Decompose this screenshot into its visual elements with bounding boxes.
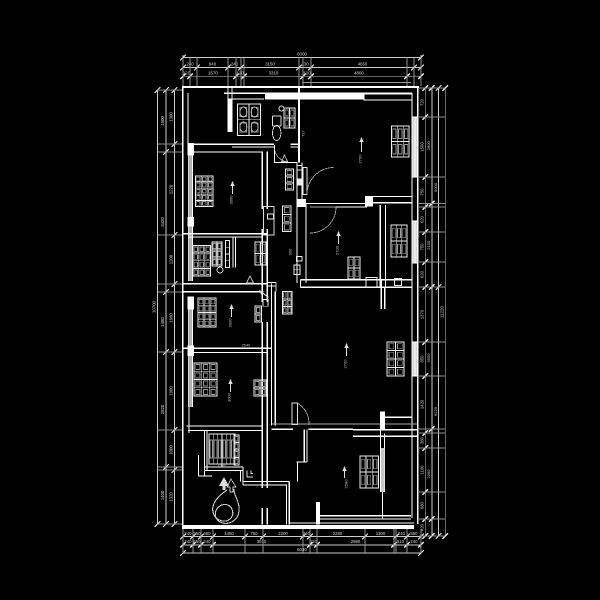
svg-text:620: 620 [419,215,424,223]
svg-text:3150: 3150 [265,62,275,67]
svg-text:3000: 3000 [228,318,233,328]
svg-text:1660: 1660 [169,313,174,323]
svg-text:1450: 1450 [218,463,226,467]
svg-text:4650: 4650 [358,62,368,67]
svg-text:2220: 2220 [169,184,174,194]
svg-text:3310: 3310 [269,70,279,75]
svg-text:900: 900 [288,248,293,255]
svg-text:380: 380 [419,436,424,444]
svg-text:3000: 3000 [229,195,234,205]
svg-text:680: 680 [419,501,424,509]
svg-text:1500: 1500 [160,116,165,126]
svg-text:3420: 3420 [160,217,165,227]
svg-text:1100: 1100 [419,465,424,475]
svg-text:240: 240 [410,539,418,544]
svg-text:620: 620 [419,270,424,278]
svg-text:2250: 2250 [426,469,431,479]
svg-text:480: 480 [203,531,211,536]
svg-text:240: 240 [231,62,239,67]
svg-text:120: 120 [310,539,318,544]
svg-text:1450: 1450 [224,531,234,536]
svg-text:510: 510 [397,539,405,544]
svg-text:550: 550 [193,539,201,544]
svg-text:2700: 2700 [335,245,340,255]
svg-text:1200: 1200 [169,254,174,264]
svg-text:6220: 6220 [433,406,438,416]
svg-text:2700: 2700 [358,154,363,164]
svg-text:850: 850 [419,355,424,363]
svg-text:240: 240 [184,539,192,544]
svg-text:1370: 1370 [419,309,424,319]
svg-text:750: 750 [419,188,424,196]
svg-text:2100: 2100 [426,240,431,250]
svg-text:1570: 1570 [208,70,218,75]
svg-text:2280: 2280 [333,531,343,536]
svg-text:2820: 2820 [160,404,165,414]
svg-text:120: 120 [303,70,311,75]
svg-text:2580: 2580 [344,479,349,489]
svg-text:240: 240 [184,531,192,536]
svg-text:727: 727 [301,129,306,136]
svg-text:6000: 6000 [297,52,307,57]
svg-text:2900: 2900 [426,141,431,151]
svg-text:1900: 1900 [169,386,174,396]
svg-text:10700: 10700 [152,300,157,313]
svg-text:1300: 1300 [169,112,174,122]
svg-text:2700: 2700 [343,359,348,369]
svg-text:4800: 4800 [354,70,364,75]
svg-text:1400: 1400 [160,490,165,500]
svg-text:350: 350 [193,531,201,536]
svg-text:2980: 2980 [351,539,361,544]
svg-text:750: 750 [250,531,258,536]
svg-text:1420: 1420 [419,399,424,409]
svg-text:120: 120 [183,70,191,75]
svg-text:420: 420 [419,523,424,531]
svg-text:240: 240 [203,539,211,544]
svg-text:1000: 1000 [169,445,174,455]
svg-text:6040: 6040 [297,547,307,552]
svg-text:240: 240 [398,531,406,536]
svg-text:720: 720 [419,98,424,106]
svg-text:750: 750 [419,243,424,251]
svg-text:3550: 3550 [426,353,431,363]
svg-text:3000: 3000 [227,392,232,402]
svg-text:11220: 11220 [439,306,444,318]
svg-text:1300: 1300 [376,531,386,536]
svg-text:3670: 3670 [257,539,267,544]
svg-text:1500: 1500 [419,142,424,152]
svg-text:5000: 5000 [433,182,438,192]
svg-text:2540: 2540 [242,344,250,348]
svg-text:240: 240 [303,531,311,536]
svg-text:2200: 2200 [278,531,288,536]
svg-text:550: 550 [410,531,418,536]
svg-text:120: 120 [236,70,244,75]
svg-text:1480: 1480 [160,317,165,327]
svg-text:130: 130 [301,62,309,67]
svg-text:1320: 1320 [169,492,174,502]
svg-text:940: 940 [209,62,217,67]
